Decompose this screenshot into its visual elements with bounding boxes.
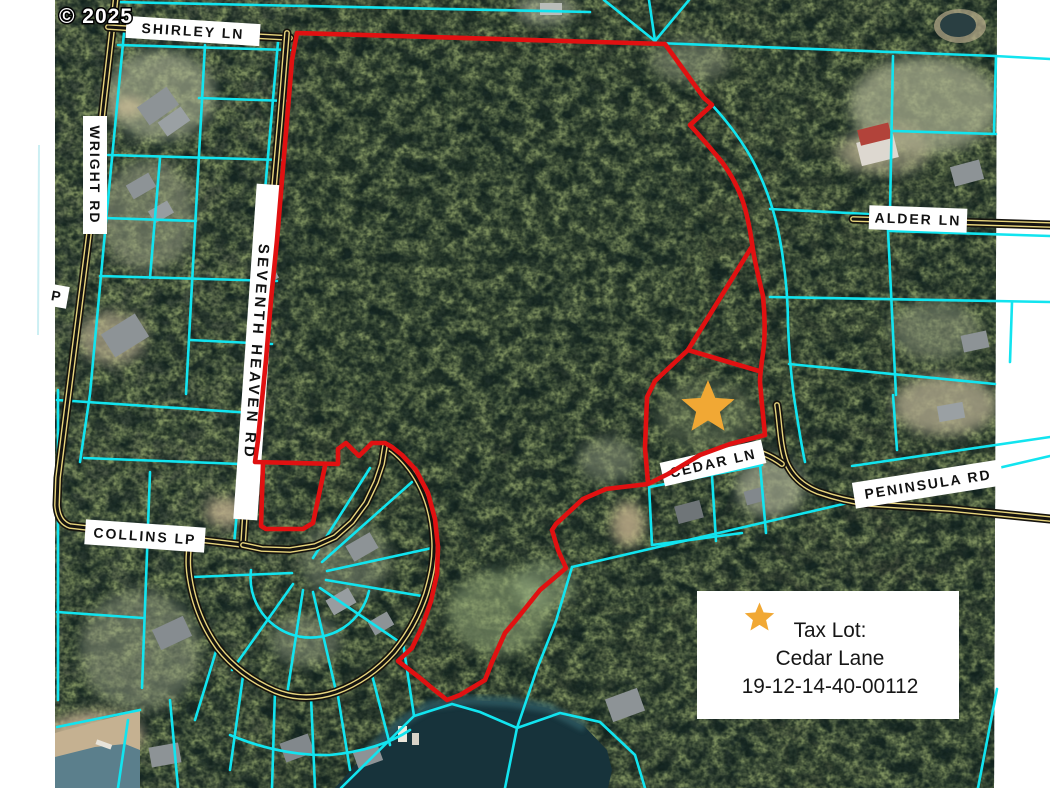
svg-text:Cedar Lane: Cedar Lane	[776, 647, 885, 670]
svg-text:© 2025: © 2025	[59, 5, 133, 28]
svg-text:ALDER LN: ALDER LN	[874, 210, 961, 229]
svg-text:Tax Lot:: Tax Lot:	[794, 619, 867, 642]
svg-text:WRIGHT RD: WRIGHT RD	[87, 126, 103, 225]
svg-text:19-12-14-40-00112: 19-12-14-40-00112	[742, 675, 919, 698]
